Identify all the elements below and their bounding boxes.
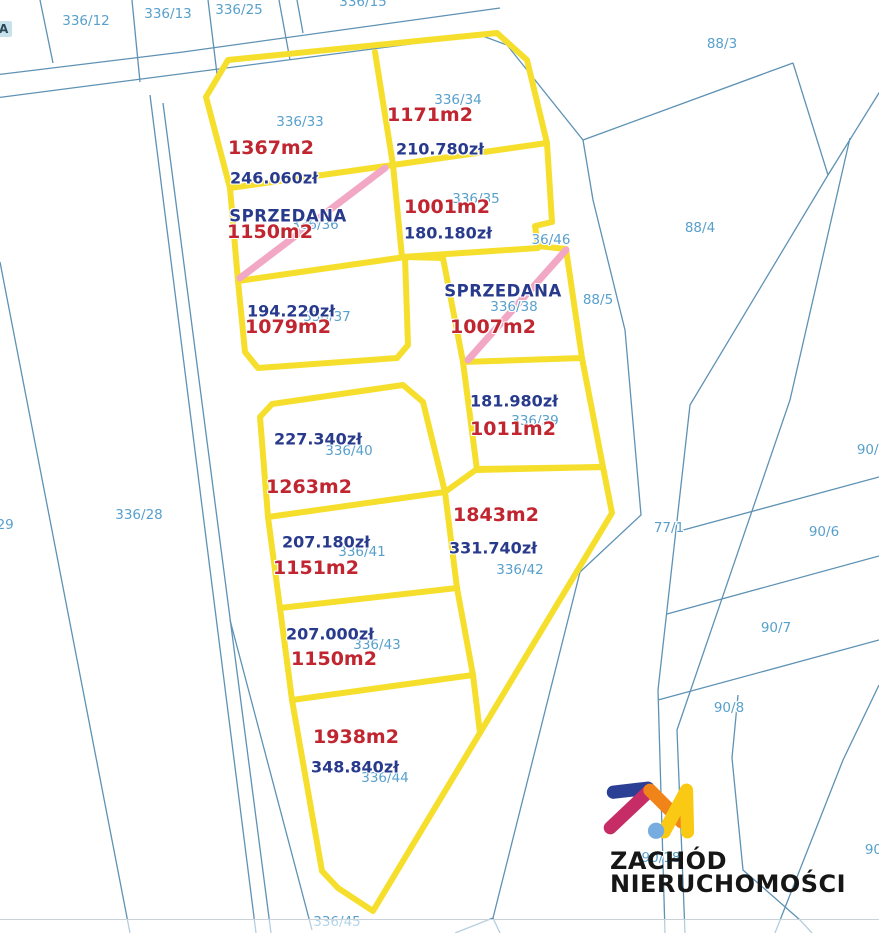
parcel-id-label: 336/28 xyxy=(115,507,163,523)
map-canvas[interactable]: 336/12336/13336/25336/1588/388/488/536/4… xyxy=(0,0,879,933)
listing-area-label: 1151m2 xyxy=(273,557,359,579)
listing-area-label: 1367m2 xyxy=(228,137,314,159)
listing-price-label: 227.340zł xyxy=(274,430,362,449)
company-logo: ZACHÓD NIERUCHOMOŚCI xyxy=(598,779,868,896)
listing-status-label: SPRZEDANA xyxy=(229,207,346,226)
listing-status-label: SPRZEDANA xyxy=(444,282,561,301)
parcel-id-label: 336/29 xyxy=(0,517,14,533)
listing-parcel-id-label: 336/42 xyxy=(496,562,544,578)
map-edge-band xyxy=(0,919,879,933)
listing-area-label: 1938m2 xyxy=(313,726,399,748)
parcel-id-label: 336/25 xyxy=(215,2,263,18)
listing-price-label: 180.180zł xyxy=(404,224,492,243)
map-marker-a: A xyxy=(0,21,12,37)
parcel-id-label: 90/7 xyxy=(761,620,791,636)
company-name-line2: NIERUCHOMOŚCI xyxy=(610,873,868,896)
company-name: ZACHÓD NIERUCHOMOŚCI xyxy=(610,850,868,896)
listing-price-label: 207.180zł xyxy=(282,533,370,552)
parcel-id-label: 90/5 xyxy=(857,442,879,458)
listing-area-label: 1843m2 xyxy=(453,504,539,526)
parcel-id-label: 336/12 xyxy=(62,13,110,29)
listing-area-label: 1007m2 xyxy=(450,316,536,338)
listing-price-label: 331.740zł xyxy=(449,539,537,558)
listing-price-label: 348.840zł xyxy=(311,758,399,777)
parcel-id-label: 336/13 xyxy=(144,6,192,22)
listing-area-label: 1171m2 xyxy=(387,104,473,126)
parcel-id-label: 88/4 xyxy=(685,220,715,236)
listing-area-label: 1263m2 xyxy=(266,476,352,498)
listing-area-label: 1011m2 xyxy=(470,418,556,440)
parcel-id-label: 90/6 xyxy=(809,524,839,540)
listing-parcel-id-label: 336/38 xyxy=(490,299,538,315)
parcel-id-label: 77/1 xyxy=(654,520,684,536)
parcel-id-label: 88/5 xyxy=(583,292,613,308)
listing-parcel-id-label: 336/33 xyxy=(276,114,324,130)
parcel-id-label: 88/3 xyxy=(707,36,737,52)
listing-price-label: 246.060zł xyxy=(230,169,318,188)
listing-price-label: 181.980zł xyxy=(470,392,558,411)
listing-area-label: 1150m2 xyxy=(291,648,377,670)
listing-price-label: 207.000zł xyxy=(286,625,374,644)
logo-mark-icon xyxy=(603,779,705,843)
parcel-id-label: 36/46 xyxy=(532,232,571,248)
listing-area-label: 1001m2 xyxy=(404,196,490,218)
parcel-id-label: 90/8 xyxy=(714,700,744,716)
parcel-id-label: 336/15 xyxy=(339,0,387,10)
listing-price-label: 194.220zł xyxy=(247,302,335,321)
listing-price-label: 210.780zł xyxy=(396,140,484,159)
